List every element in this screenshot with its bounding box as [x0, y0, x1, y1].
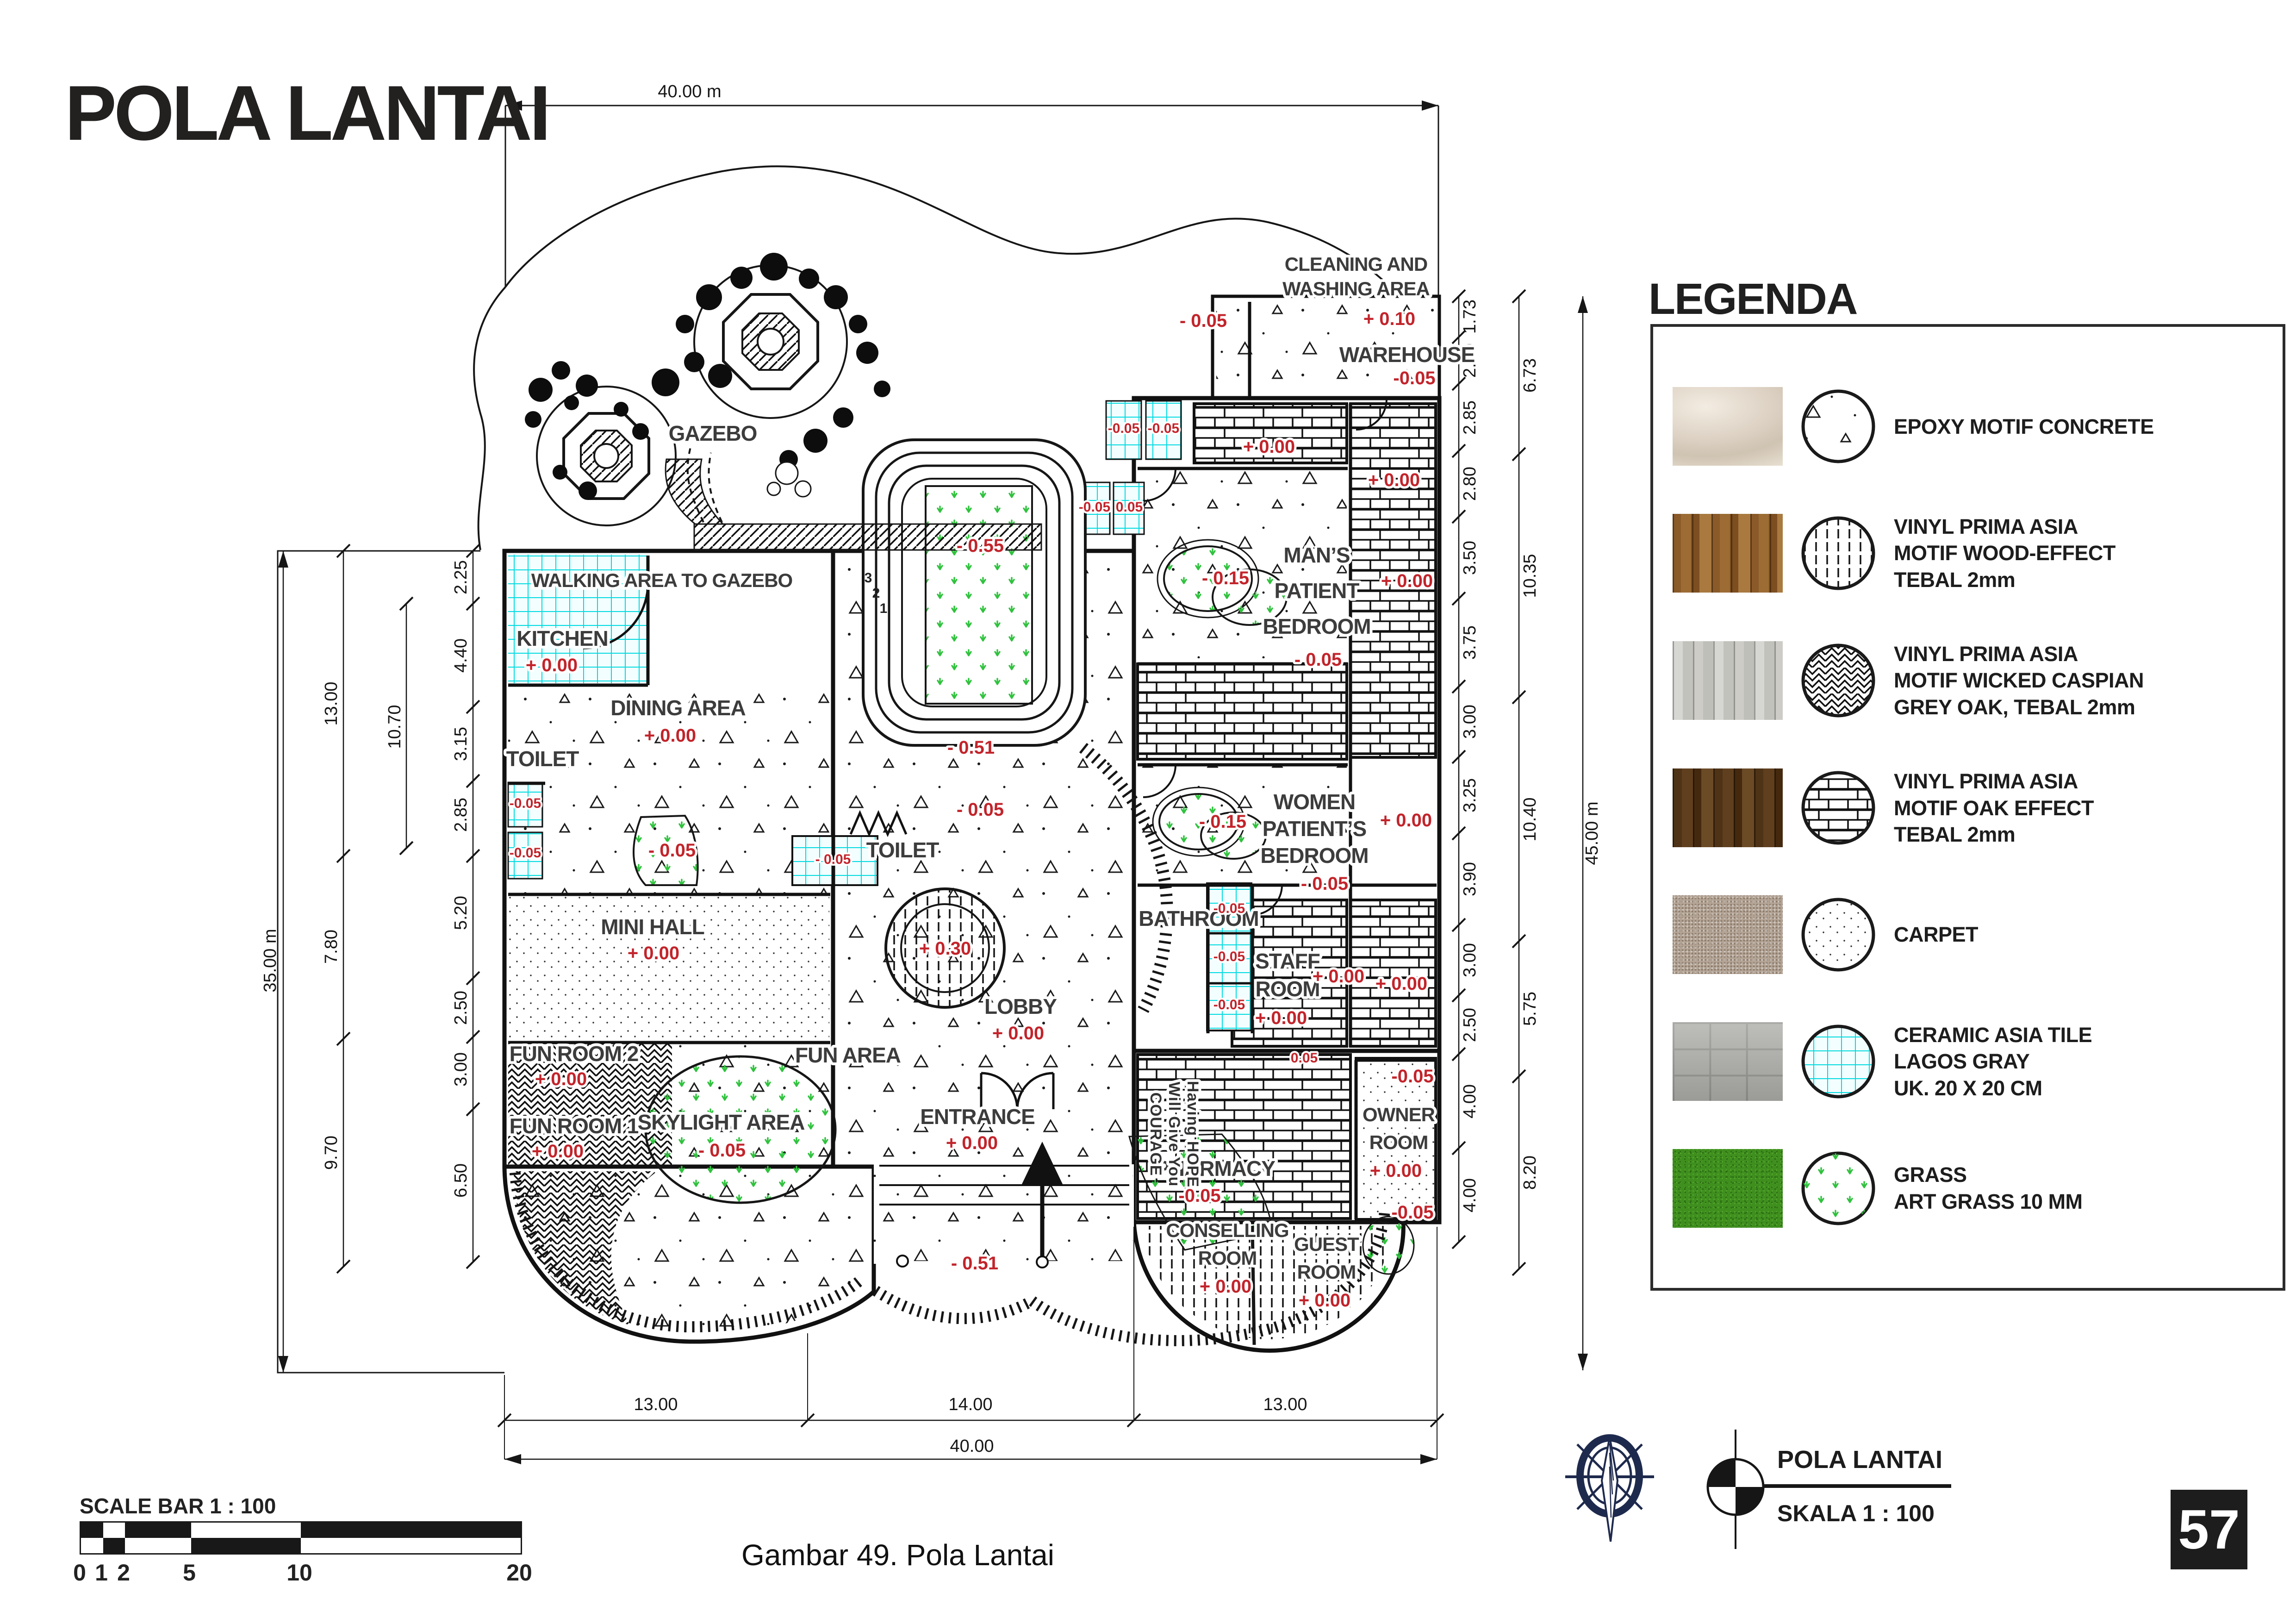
dim-right-total: 45.00 m — [1582, 801, 1602, 865]
svg-text:3.25: 3.25 — [1460, 778, 1480, 812]
svg-text:6.50: 6.50 — [451, 1163, 471, 1198]
legend-item-wood-effect: VINYL PRIMA ASIA MOTIF WOOD-EFFECT TEBAL… — [1673, 513, 2263, 593]
legend-label: VINYL PRIMA ASIA MOTIF WOOD-EFFECT TEBAL… — [1894, 513, 2116, 593]
svg-text:+ 0.00: + 0.00 — [946, 1133, 998, 1153]
svg-text:+ 0.00: + 0.00 — [532, 1141, 584, 1162]
svg-text:+ 0.00: + 0.00 — [1243, 437, 1295, 457]
north-symbol-icon — [1694, 1427, 1777, 1552]
svg-text:-0.05: -0.05 — [510, 796, 541, 811]
scale-bar — [80, 1521, 522, 1555]
oak-swatch-image — [1673, 768, 1783, 847]
epoxy-swatch-image — [1673, 387, 1783, 466]
svg-text:KITCHEN: KITCHEN — [516, 626, 608, 650]
svg-text:COURAGE: COURAGE — [1147, 1093, 1164, 1176]
svg-text:3.75: 3.75 — [1460, 625, 1480, 660]
svg-text:+ 0.00: + 0.00 — [1380, 810, 1432, 831]
svg-text:3.00: 3.00 — [1460, 943, 1480, 977]
svg-text:-0.05: -0.05 — [1391, 1066, 1433, 1087]
svg-text:MAN’S: MAN’S — [1283, 543, 1350, 567]
legend-item-carpet: CARPET — [1673, 895, 2263, 974]
svg-text:MINI HALL: MINI HALL — [601, 915, 704, 939]
svg-text:+ 0.00: + 0.00 — [526, 655, 578, 675]
page: { "header": {"title": "POLA LANTAI"}, "c… — [0, 0, 2296, 1624]
svg-text:- 0.05: - 0.05 — [815, 852, 851, 867]
scale-bar-row-bottom — [81, 1538, 521, 1553]
svg-text:3.90: 3.90 — [1460, 862, 1480, 896]
svg-text:5.75: 5.75 — [1520, 992, 1540, 1026]
svg-text:2.25: 2.25 — [451, 560, 471, 594]
svg-text:+ 0.00: + 0.00 — [1200, 1276, 1251, 1297]
svg-text:2: 2 — [872, 586, 880, 601]
carpet-swatch-image — [1673, 895, 1783, 974]
svg-text:- 0.51: - 0.51 — [951, 1253, 998, 1274]
dim-bottom-2: 13.00 — [1263, 1395, 1307, 1414]
svg-text:- 0.55: - 0.55 — [957, 536, 1004, 556]
svg-text:PATIENT: PATIENT — [1275, 579, 1360, 603]
dim-bottom-1: 14.00 — [948, 1395, 992, 1414]
svg-text:+ 0.00: + 0.00 — [1313, 966, 1364, 987]
dim-left-g0: 13.00 — [322, 681, 341, 725]
svg-text:STAFF: STAFF — [1255, 949, 1320, 973]
svg-text:3.00: 3.00 — [1460, 705, 1480, 739]
svg-text:1.73: 1.73 — [1460, 300, 1480, 334]
grass-swatch-image — [1673, 1149, 1783, 1228]
svg-text:ENTRANCE: ENTRANCE — [920, 1105, 1035, 1129]
bushes — [767, 462, 811, 497]
garden-gazebos — [525, 253, 890, 525]
svg-text:+ 0.00: + 0.00 — [992, 1023, 1044, 1043]
dim-bottom-0: 13.00 — [634, 1395, 678, 1414]
svg-text:ROOM: ROOM — [1297, 1261, 1356, 1283]
svg-text:+ 0.00: + 0.00 — [644, 725, 696, 746]
svg-text:TOILET: TOILET — [866, 838, 940, 862]
svg-text:SKYLIGHT AREA: SKYLIGHT AREA — [638, 1110, 805, 1134]
svg-text:6.73: 6.73 — [1520, 358, 1540, 393]
svg-text:GAZEBO: GAZEBO — [669, 421, 757, 445]
svg-text:BEDROOM: BEDROOM — [1263, 614, 1370, 638]
ceramic-swatch-image — [1673, 1022, 1783, 1101]
svg-text:+ 0.00: + 0.00 — [535, 1069, 587, 1089]
svg-text:+ 0.30: + 0.30 — [919, 938, 971, 959]
dim-left-g1: 7.80 — [322, 930, 341, 964]
svg-text:2.80: 2.80 — [1460, 467, 1480, 501]
dim-left-total: 35.00 m — [261, 929, 280, 992]
svg-text:- 0.51: - 0.51 — [947, 737, 995, 758]
svg-text:+ 0.00: + 0.00 — [1370, 1161, 1422, 1181]
svg-text:- 0.05: - 0.05 — [1301, 874, 1348, 894]
legend-label: EPOXY MOTIF CONCRETE — [1894, 413, 2154, 440]
dim-bottom-total: 40.00 — [950, 1437, 994, 1456]
svg-text:2.50: 2.50 — [451, 991, 471, 1025]
brick-pattern-icon — [1799, 769, 1877, 847]
svg-text:-0.05: -0.05 — [1213, 949, 1245, 964]
svg-text:+ 0.00: + 0.00 — [1375, 974, 1427, 994]
svg-text:-0.05: -0.05 — [1393, 368, 1435, 388]
svg-text:3.50: 3.50 — [1460, 541, 1480, 575]
carpet-pattern-icon — [1799, 896, 1877, 974]
legend-item-ceramic: CERAMIC ASIA TILE LAGOS GRAY UK. 20 X 20… — [1673, 1022, 2263, 1102]
svg-text:ROOM: ROOM — [1255, 977, 1319, 1001]
svg-text:- 0.05: - 0.05 — [957, 800, 1004, 820]
svg-text:+ 0.10: + 0.10 — [1363, 309, 1415, 329]
svg-text:-0.05: -0.05 — [1079, 500, 1110, 515]
page-number-badge: 57 — [2171, 1490, 2247, 1569]
wood-pattern-icon — [1799, 514, 1877, 592]
svg-text:TOILET: TOILET — [506, 747, 579, 771]
svg-text:- 0.05: - 0.05 — [1180, 311, 1227, 331]
svg-text:2.85: 2.85 — [1460, 400, 1480, 435]
title-block-scale: SKALA 1 : 100 — [1777, 1500, 1935, 1527]
svg-text:- 0.05: - 0.05 — [1294, 650, 1342, 670]
svg-text:Will Give You: Will Give You — [1165, 1082, 1183, 1187]
title-block-drawing-name: POLA LANTAI — [1777, 1445, 1942, 1474]
svg-text:- 0.05: - 0.05 — [698, 1140, 746, 1161]
svg-text:FUN ROOM 2: FUN ROOM 2 — [510, 1042, 639, 1066]
ceramic-pattern-icon — [1799, 1023, 1877, 1100]
svg-text:CLEANING AND: CLEANING AND — [1285, 253, 1427, 275]
svg-text:-0.05: -0.05 — [1213, 997, 1245, 1012]
svg-text:FUN ROOM 1: FUN ROOM 1 — [510, 1114, 639, 1138]
svg-text:ROOM: ROOM — [1369, 1131, 1428, 1153]
svg-text:BEDROOM: BEDROOM — [1260, 843, 1368, 868]
legend-label: CARPET — [1894, 921, 1978, 948]
compass-logo-icon — [1559, 1425, 1661, 1553]
grass-pattern-icon — [1799, 1149, 1877, 1227]
legend-item-epoxy: EPOXY MOTIF CONCRETE — [1673, 387, 2263, 466]
legend-label: GRASS ART GRASS 10 MM — [1894, 1162, 2083, 1215]
svg-text:+ 0.00: + 0.00 — [1368, 470, 1420, 490]
legend-label: CERAMIC ASIA TILE LAGOS GRAY UK. 20 X 20… — [1894, 1022, 2092, 1102]
svg-text:LOBBY: LOBBY — [984, 994, 1057, 1018]
legend-item-grass: GRASS ART GRASS 10 MM — [1673, 1149, 2263, 1228]
svg-text:- 0.15: - 0.15 — [1199, 812, 1246, 832]
svg-text:FUN AREA: FUN AREA — [795, 1043, 901, 1067]
svg-text:CONSELLING: CONSELLING — [1166, 1219, 1288, 1241]
svg-text:WAREHOUSE: WAREHOUSE — [1339, 343, 1475, 367]
figure-caption: Gambar 49. Pola Lantai — [666, 1538, 1129, 1572]
svg-text:-0.05: -0.05 — [510, 845, 541, 861]
svg-text:+ 0.00: + 0.00 — [1255, 1008, 1307, 1028]
dim-left-g2: 9.70 — [322, 1136, 341, 1170]
svg-text:-0.05: -0.05 — [1178, 1186, 1220, 1206]
legend-item-oak-effect: VINYL PRIMA ASIA MOTIF OAK EFFECT TEBAL … — [1673, 768, 2263, 848]
svg-text:+ 0.00: + 0.00 — [1299, 1290, 1350, 1311]
svg-text:3.15: 3.15 — [451, 727, 471, 761]
svg-text:- 0.05: - 0.05 — [648, 840, 696, 861]
dim-left-mid: 10.70 — [385, 705, 404, 749]
svg-text:+ 0.00: + 0.00 — [628, 943, 679, 963]
svg-text:PATIENT’S: PATIENT’S — [1263, 817, 1366, 841]
courtyard — [863, 440, 1085, 745]
legend-label: VINYL PRIMA ASIA MOTIF OAK EFFECT TEBAL … — [1894, 768, 2094, 848]
svg-text:WALKING AREA TO GAZEBO: WALKING AREA TO GAZEBO — [531, 569, 792, 591]
legend-label: VINYL PRIMA ASIA MOTIF WICKED CASPIAN GR… — [1894, 641, 2144, 721]
svg-text:4.00: 4.00 — [1460, 1178, 1480, 1212]
svg-text:8.20: 8.20 — [1520, 1156, 1540, 1190]
legend-item-wicked-caspian: VINYL PRIMA ASIA MOTIF WICKED CASPIAN GR… — [1673, 641, 2263, 721]
svg-text:- 0.15: - 0.15 — [1202, 568, 1249, 588]
svg-text:2.50: 2.50 — [1460, 1008, 1480, 1042]
svg-text:1: 1 — [880, 601, 888, 616]
svg-text:WOMEN: WOMEN — [1274, 790, 1355, 814]
svg-text:Having HOPE: Having HOPE — [1184, 1081, 1201, 1187]
legend: EPOXY MOTIF CONCRETE VINYL PRIMA ASIA MO… — [1650, 324, 2285, 1291]
svg-text:WASHING AREA: WASHING AREA — [1282, 278, 1430, 300]
svg-text:-0.05: -0.05 — [1108, 421, 1139, 436]
svg-text:5.20: 5.20 — [451, 896, 471, 930]
page-title: POLA LANTAI — [65, 69, 548, 158]
svg-text:+ 0.00: + 0.00 — [1381, 571, 1433, 591]
svg-text:4.40: 4.40 — [451, 638, 471, 673]
legend-title: LEGENDA — [1649, 274, 1857, 325]
svg-text:-0.05: -0.05 — [1148, 421, 1179, 436]
dim-top-total: 40.00 m — [658, 82, 721, 101]
epoxy-pattern-icon — [1799, 387, 1877, 465]
svg-text:-0.05: -0.05 — [1391, 1202, 1433, 1223]
svg-text:3.00: 3.00 — [451, 1052, 471, 1087]
svg-text:4.00: 4.00 — [1460, 1084, 1480, 1118]
svg-text:3: 3 — [865, 570, 872, 586]
svg-text:ROOM: ROOM — [1198, 1247, 1257, 1269]
svg-text:GUEST: GUEST — [1294, 1233, 1359, 1255]
scale-bar-title: SCALE BAR 1 : 100 — [80, 1493, 276, 1518]
scale-bar-row-top — [81, 1523, 521, 1538]
svg-text:OWNER: OWNER — [1363, 1104, 1435, 1125]
svg-text:-0.05: -0.05 — [1213, 901, 1245, 916]
svg-text:2.85: 2.85 — [451, 798, 471, 832]
svg-text:0.05: 0.05 — [1116, 500, 1143, 515]
herringbone-pattern-icon — [1799, 642, 1877, 719]
svg-text:10.35: 10.35 — [1520, 554, 1540, 598]
svg-text:DINING AREA: DINING AREA — [610, 696, 745, 720]
grey-oak-swatch-image — [1673, 641, 1783, 720]
svg-text:10.40: 10.40 — [1520, 797, 1540, 841]
svg-text:0.05: 0.05 — [1291, 1050, 1318, 1066]
wood-swatch-image — [1673, 514, 1783, 593]
